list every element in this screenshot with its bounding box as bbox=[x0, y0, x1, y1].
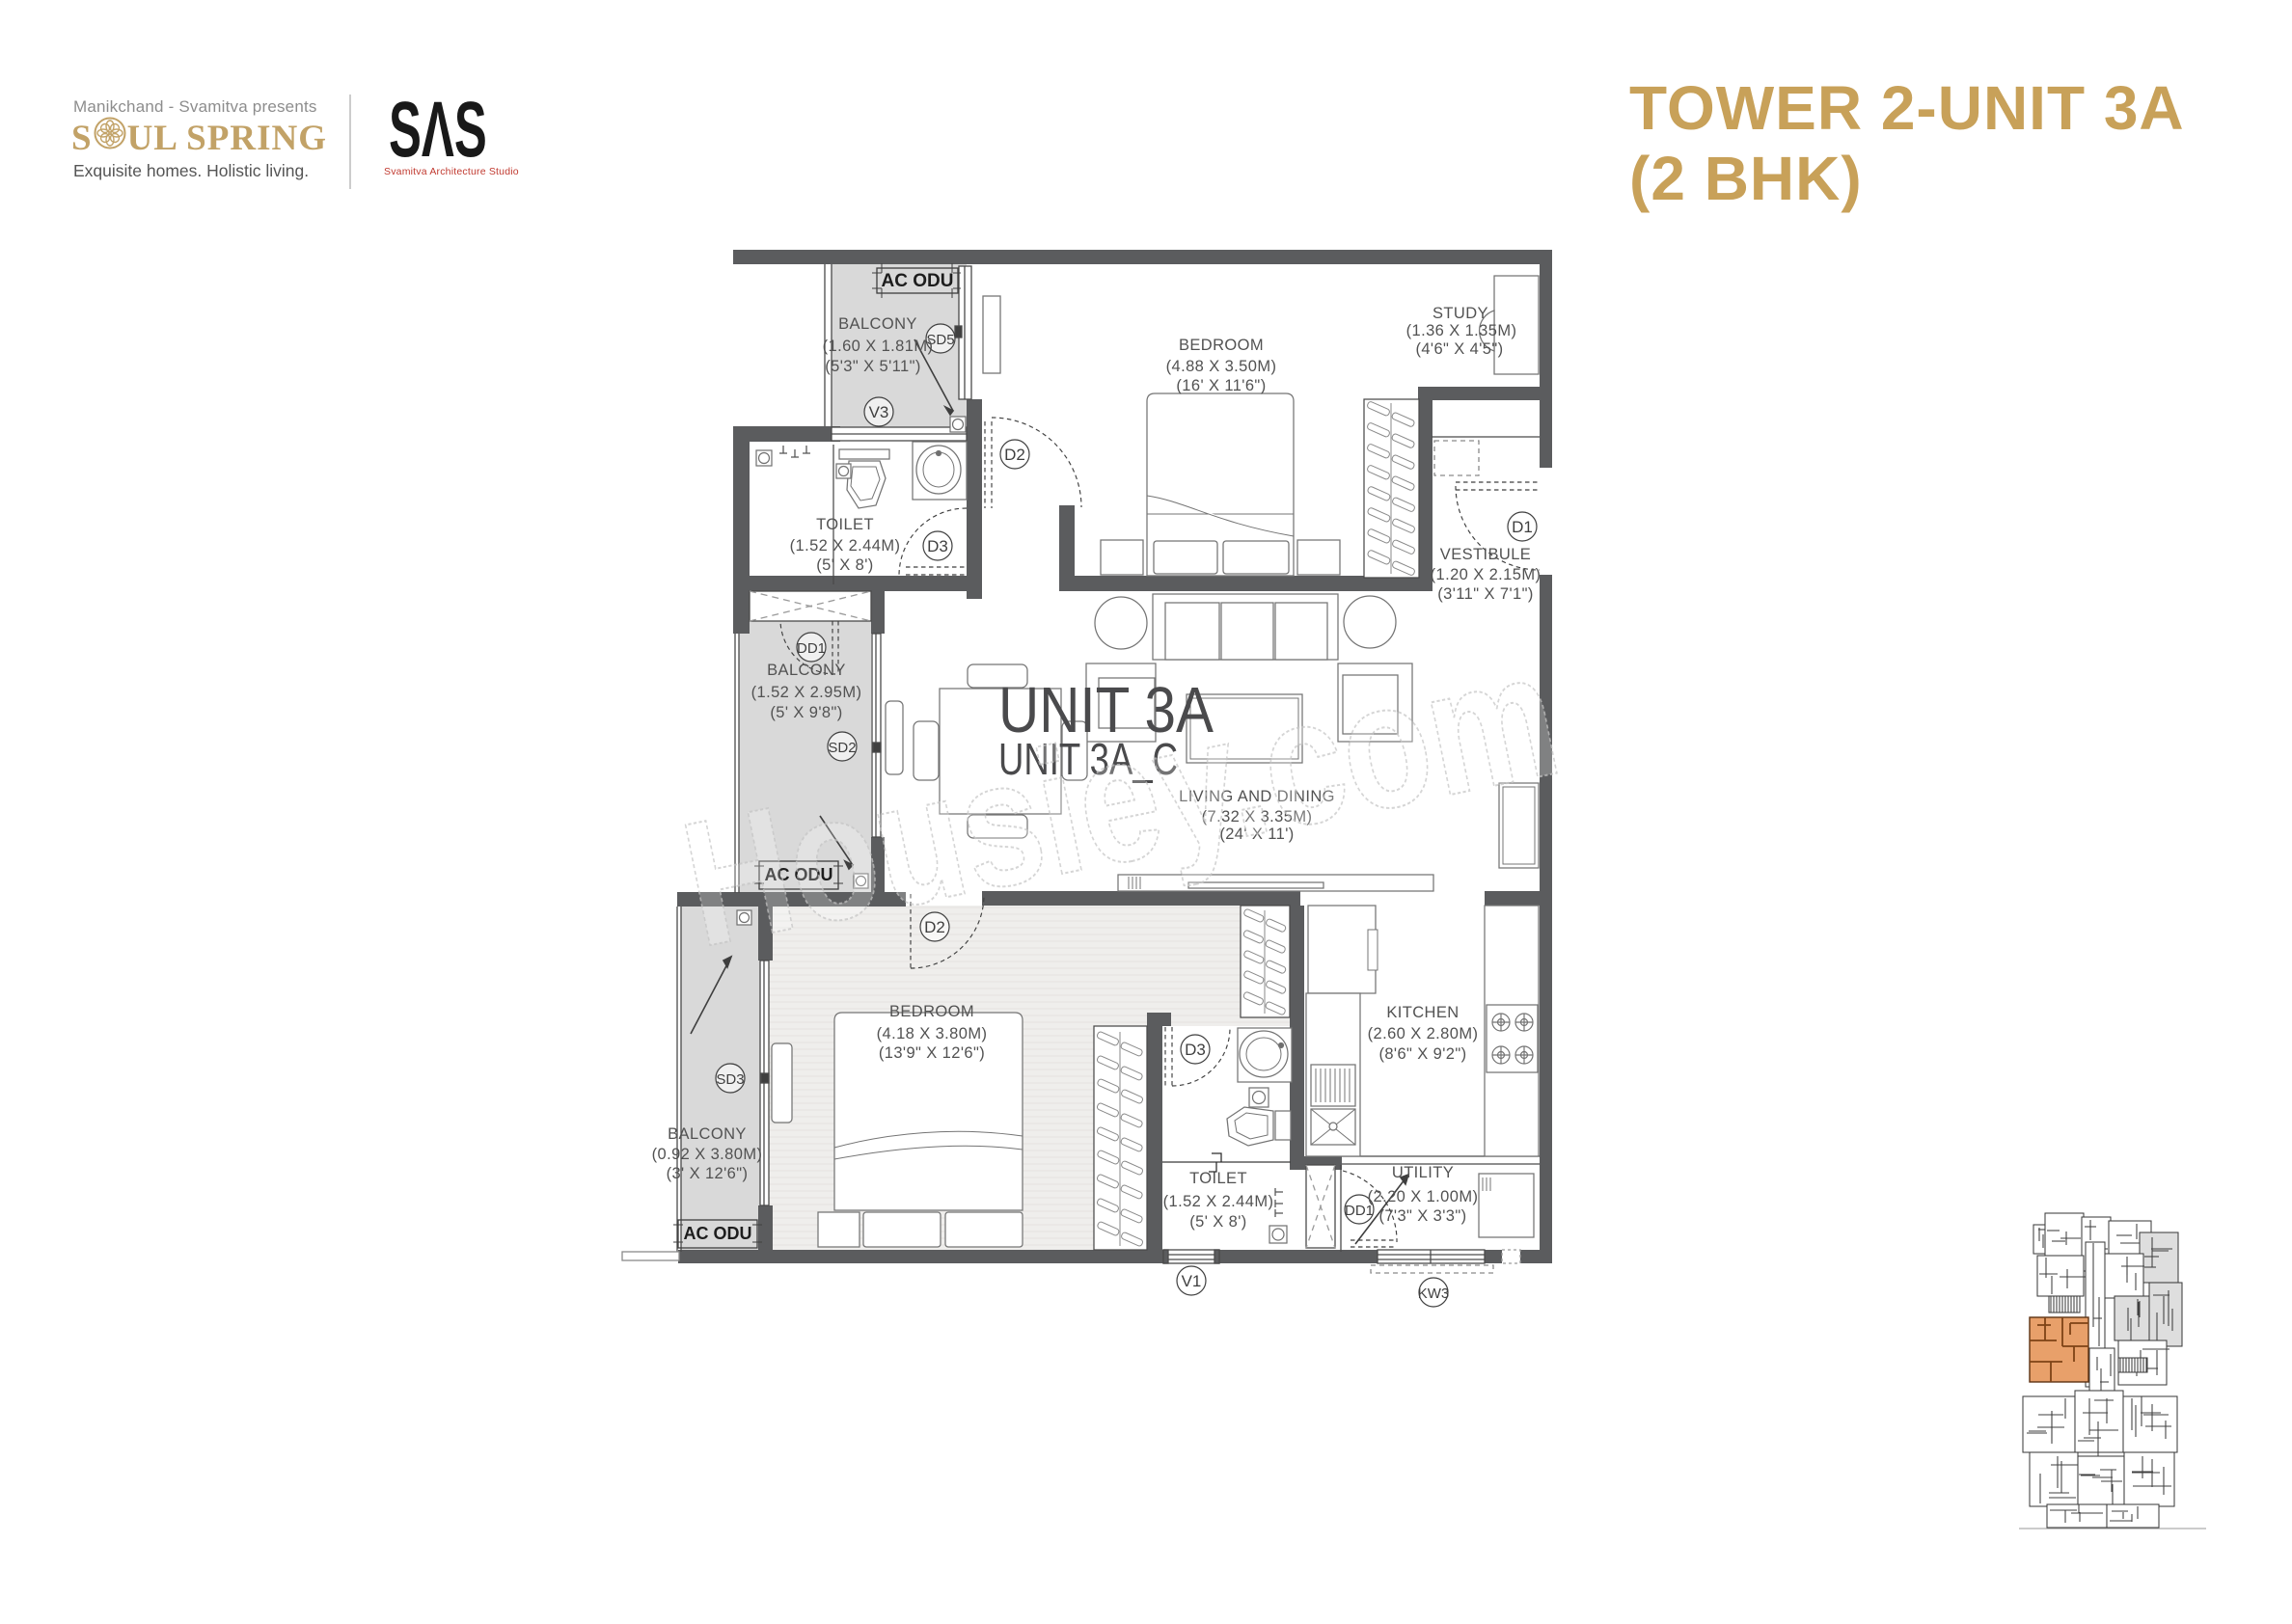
svg-text:(1.52 X 2.44M): (1.52 X 2.44M) bbox=[1163, 1193, 1274, 1210]
svg-text:V1: V1 bbox=[1182, 1272, 1202, 1290]
svg-text:(5' X 8'): (5' X 8') bbox=[816, 556, 873, 574]
svg-text:TOILET: TOILET bbox=[1189, 1170, 1247, 1187]
svg-text:AC ODU: AC ODU bbox=[684, 1224, 752, 1243]
svg-text:(1.52 X 2.44M): (1.52 X 2.44M) bbox=[790, 537, 901, 555]
svg-text:AC ODU: AC ODU bbox=[882, 271, 954, 291]
svg-text:UTILITY: UTILITY bbox=[1392, 1164, 1454, 1181]
svg-text:D2: D2 bbox=[1004, 446, 1025, 464]
svg-text:D1: D1 bbox=[1512, 518, 1533, 536]
svg-text:D3: D3 bbox=[1185, 1041, 1206, 1059]
svg-text:V3: V3 bbox=[869, 403, 889, 421]
svg-text:(4.18 X 3.80M): (4.18 X 3.80M) bbox=[877, 1025, 988, 1042]
svg-text:TOILET: TOILET bbox=[816, 516, 874, 533]
svg-text:(16' X 11'6"): (16' X 11'6") bbox=[1176, 377, 1266, 394]
svg-text:(5' X 9'8"): (5' X 9'8") bbox=[770, 704, 842, 721]
svg-text:BALCONY: BALCONY bbox=[668, 1125, 747, 1143]
svg-text:(1.36 X 1.35M): (1.36 X 1.35M) bbox=[1406, 322, 1517, 339]
svg-text:(7'3" X 3'3"): (7'3" X 3'3") bbox=[1378, 1207, 1466, 1225]
svg-text:SD3: SD3 bbox=[716, 1071, 744, 1088]
svg-text:(1.20 X 2.15M): (1.20 X 2.15M) bbox=[1431, 566, 1542, 583]
svg-text:KITCHEN: KITCHEN bbox=[1386, 1004, 1459, 1021]
svg-text:(5' X 8'): (5' X 8') bbox=[1189, 1213, 1246, 1231]
svg-text:D3: D3 bbox=[927, 537, 948, 555]
svg-text:(1.52 X 2.95M): (1.52 X 2.95M) bbox=[751, 684, 862, 701]
svg-text:(13'9" X 12'6"): (13'9" X 12'6") bbox=[879, 1044, 985, 1062]
svg-text:KW3: KW3 bbox=[1418, 1286, 1450, 1302]
svg-text:(0.92 X 3.80M): (0.92 X 3.80M) bbox=[652, 1146, 763, 1163]
svg-text:(8'6" X 9'2"): (8'6" X 9'2") bbox=[1378, 1045, 1466, 1063]
svg-text:VESTIBULE: VESTIBULE bbox=[1440, 546, 1531, 563]
svg-text:BEDROOM: BEDROOM bbox=[1179, 337, 1264, 354]
svg-text:(1.60 X 1.81M): (1.60 X 1.81M) bbox=[823, 338, 934, 355]
svg-text:(2.60 X 2.80M): (2.60 X 2.80M) bbox=[1368, 1025, 1479, 1042]
svg-text:DD1: DD1 bbox=[797, 640, 826, 657]
svg-text:(2.20 X 1.00M): (2.20 X 1.00M) bbox=[1368, 1188, 1479, 1205]
svg-text:(3' X 12'6"): (3' X 12'6") bbox=[667, 1165, 749, 1182]
svg-text:(3'11" X 7'1"): (3'11" X 7'1") bbox=[1437, 585, 1533, 603]
svg-text:(4'6" X 4'5"): (4'6" X 4'5") bbox=[1415, 340, 1503, 358]
svg-text:(4.88 X 3.50M): (4.88 X 3.50M) bbox=[1166, 358, 1277, 375]
svg-text:(5'3" X 5'11"): (5'3" X 5'11") bbox=[825, 358, 920, 375]
svg-text:STUDY: STUDY bbox=[1432, 305, 1488, 322]
svg-text:BALCONY: BALCONY bbox=[767, 662, 846, 679]
svg-text:BEDROOM: BEDROOM bbox=[889, 1003, 974, 1020]
svg-text:BALCONY: BALCONY bbox=[838, 315, 917, 333]
